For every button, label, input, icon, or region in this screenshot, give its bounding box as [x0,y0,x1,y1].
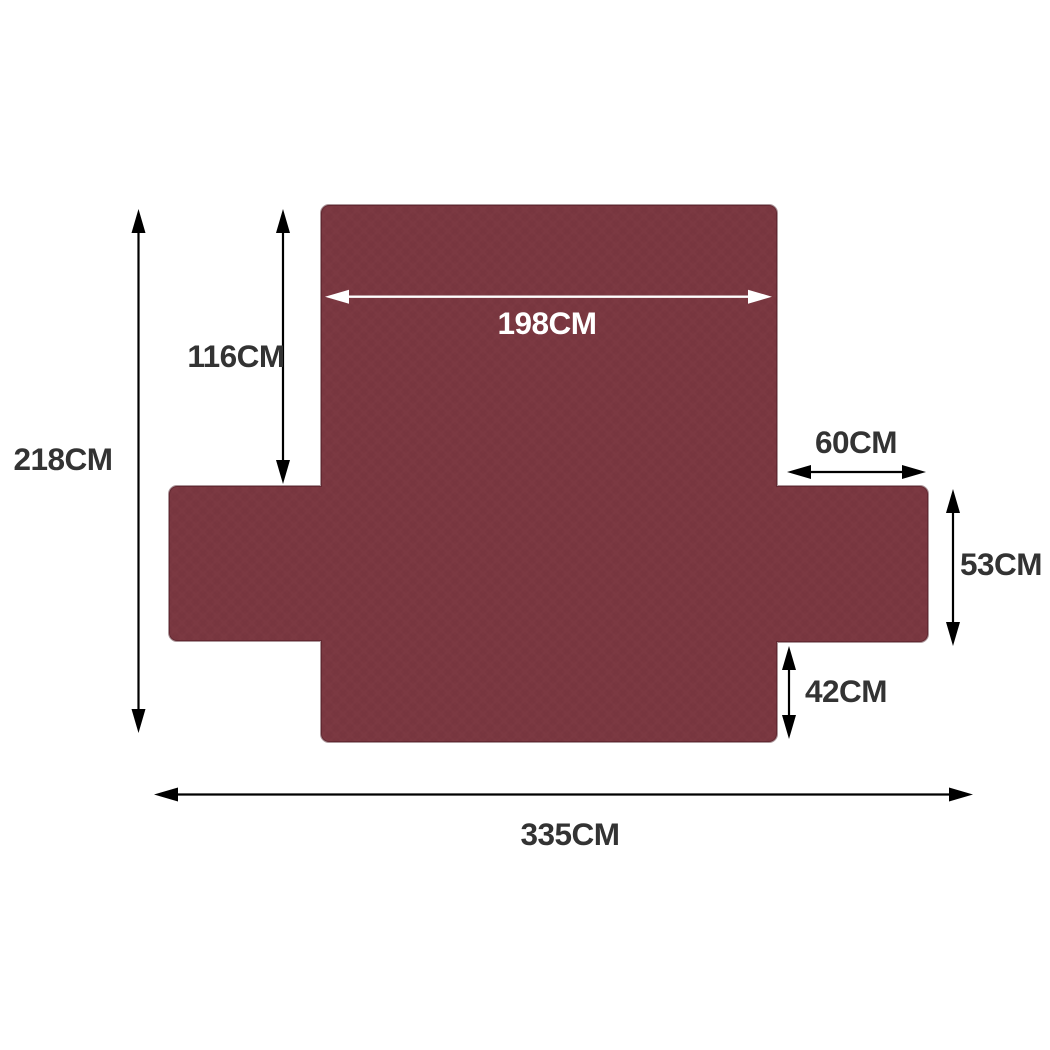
svg-text:42CM: 42CM [805,673,887,709]
svg-text:335CM: 335CM [520,816,619,852]
svg-text:198CM: 198CM [497,305,596,341]
svg-text:116CM: 116CM [187,338,284,374]
svg-text:218CM: 218CM [13,441,112,477]
svg-text:53CM: 53CM [960,546,1042,582]
svg-text:60CM: 60CM [815,424,897,460]
